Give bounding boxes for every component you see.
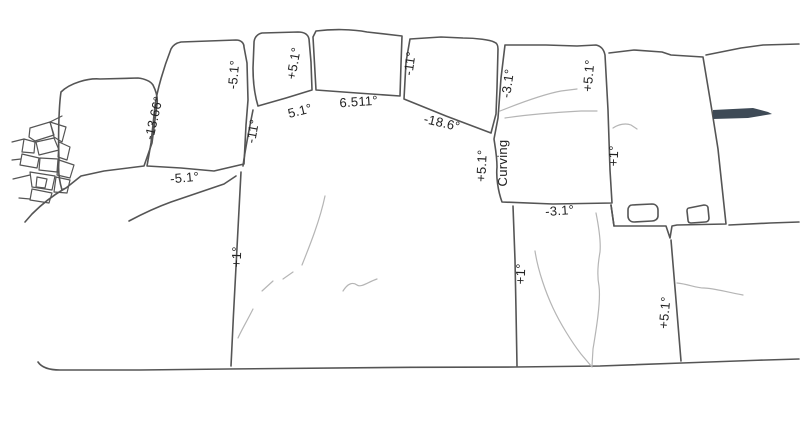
boss-knob-left: [628, 204, 658, 222]
stone-outlines: [25, 30, 799, 370]
angle-label-joint-de: -11°: [400, 50, 418, 76]
angle-label-e-bottom: -18.6°: [422, 111, 461, 134]
angle-label-m-topleft: -11°: [243, 118, 262, 144]
angle-label-joint-mn: +1°: [513, 263, 529, 284]
joint-lm-line: [231, 172, 241, 366]
stone-c: [253, 32, 312, 106]
angle-label-joint-fg-upper: +5.1°: [580, 59, 598, 93]
stone-d: [313, 30, 402, 96]
angle-label-joint-no: +5.1°: [656, 296, 674, 330]
stone-h-top: [706, 44, 799, 55]
joint-step-line: [611, 205, 614, 226]
angle-labels: -13.66° -5.1° -11° -5.1° +5.1° 5.1° 6.51…: [141, 46, 673, 329]
angle-label-joint-fg-lower: +1°: [606, 145, 622, 166]
rubble-stones: [12, 116, 74, 203]
joint-mn-line: [513, 206, 517, 366]
wall-drawing-svg: -13.66° -5.1° -11° -5.1° +5.1° 5.1° 6.51…: [0, 0, 800, 425]
angle-label-joint-mf: +5.1°: [473, 149, 490, 182]
curving-note-label: Curving: [495, 140, 510, 187]
ground-line: [38, 359, 799, 370]
angle-label-joint-ab: -13.66°: [141, 95, 166, 141]
dark-joint-wedge: [713, 108, 772, 119]
boss-knob-right: [687, 205, 709, 223]
angle-label-joint-ef: -3.1°: [498, 68, 517, 99]
wall-elevation-drawing: -13.66° -5.1° -11° -5.1° +5.1° 5.1° 6.51…: [0, 0, 800, 425]
angle-label-joint-lm: +1°: [229, 246, 245, 267]
angle-label-d-bottom: 6.511°: [339, 93, 379, 111]
angle-label-c-bottom: 5.1°: [286, 100, 313, 120]
stone-h-bottom: [729, 222, 799, 225]
angle-label-joint-cd: +5.1°: [283, 46, 303, 80]
angle-label-joint-bc: -5.1°: [225, 59, 242, 89]
angle-label-f-bottom: -3.1°: [545, 202, 575, 219]
angle-label-b-bottom: -5.1°: [169, 169, 199, 186]
